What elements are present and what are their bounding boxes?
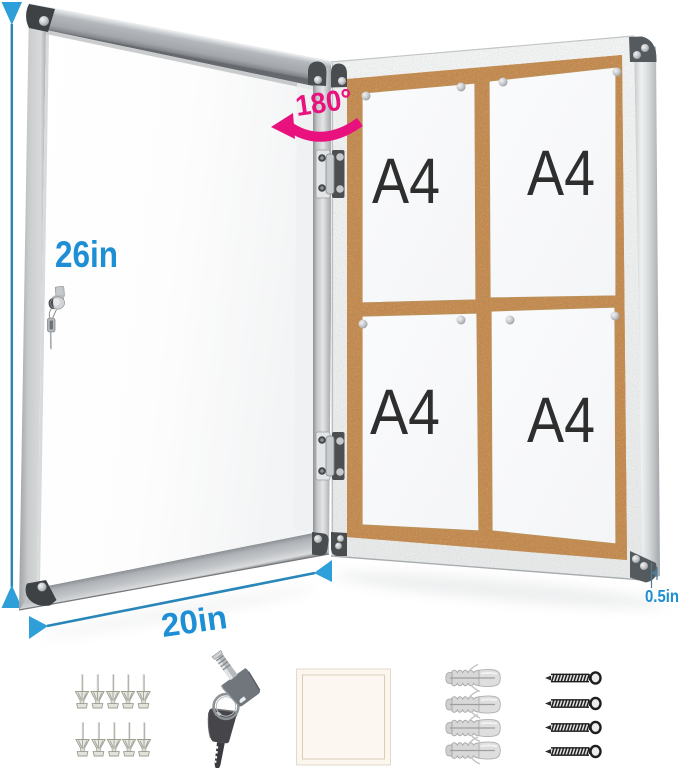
svg-text:A4: A4	[527, 137, 595, 209]
svg-text:0.5in: 0.5in	[645, 586, 679, 606]
svg-text:A4: A4	[527, 384, 595, 456]
svg-text:26in: 26in	[55, 234, 118, 275]
svg-text:A4: A4	[370, 376, 440, 448]
svg-text:A4: A4	[372, 145, 440, 217]
